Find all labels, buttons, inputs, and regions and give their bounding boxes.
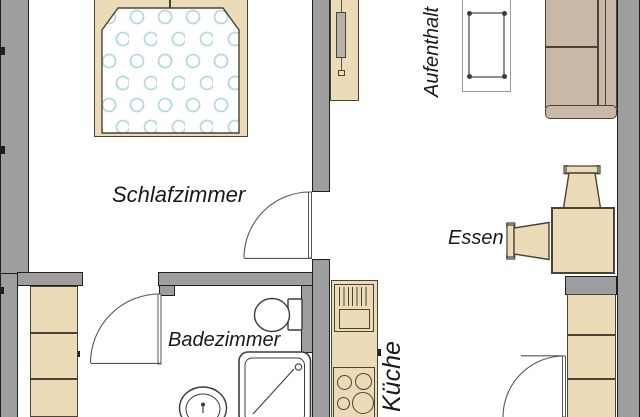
wall-tick (0, 146, 5, 154)
stove-burner (355, 373, 372, 390)
room-label-essen: Essen (448, 228, 504, 249)
table-leg (467, 74, 472, 79)
stove (333, 367, 375, 417)
wardrobe-divider (31, 332, 77, 334)
kitchen-door (501, 355, 567, 417)
room-label-aufenthalt: Aufenthalt (422, 0, 456, 97)
room-label-kueche: Küche (380, 314, 416, 412)
room-label-schlafzimmer: Schlafzimmer (112, 183, 245, 206)
cabinet-divider (568, 378, 615, 380)
kitchen-counter (331, 280, 378, 417)
stove-burner (337, 397, 350, 410)
cabinet-divider (568, 334, 615, 336)
sofa-cushion-divider (546, 46, 599, 48)
wall-divider-lower (312, 259, 330, 417)
dining-table (551, 207, 615, 274)
hallway-wardrobe (30, 286, 78, 417)
wall-right (617, 0, 640, 417)
wall-bath-north (158, 272, 313, 286)
wall-divider-upper (312, 0, 330, 192)
wall-left-upper (0, 0, 29, 274)
shower (238, 351, 312, 417)
floor-plan: Schlafzimmer Aufenthalt Essen Küche (0, 0, 640, 417)
table-leg (502, 74, 507, 79)
tv-stand-base (338, 70, 345, 76)
table-leg (467, 11, 472, 16)
tv-antenna-line (341, 0, 342, 12)
tv (336, 12, 346, 58)
sofa-backrest-line (597, 0, 599, 107)
washbasin (178, 385, 228, 417)
dining-chair-west (506, 221, 550, 261)
bathroom-door (90, 293, 164, 366)
coffee-table-inner (468, 12, 505, 78)
bedroom-door (243, 191, 313, 260)
wall-bedroom-south (17, 272, 83, 286)
wall-left-lower (0, 273, 18, 417)
bed-duvet (101, 7, 240, 134)
wardrobe-divider (31, 378, 77, 380)
sink-drainer (339, 287, 370, 306)
dining-chair-north (562, 165, 602, 209)
toilet (253, 296, 305, 334)
wall-tick (0, 47, 5, 55)
stove-burner (352, 392, 374, 414)
sofa-armrest (545, 105, 617, 119)
sofa (545, 0, 617, 108)
stove-burner (337, 375, 352, 390)
wall-kitchen-north (565, 276, 617, 295)
kitchen-tall-cabinets (567, 294, 616, 417)
table-leg (502, 11, 507, 16)
sink-basin (339, 309, 370, 329)
wall-tick (0, 287, 4, 294)
sofa-backrest-line (605, 0, 607, 107)
